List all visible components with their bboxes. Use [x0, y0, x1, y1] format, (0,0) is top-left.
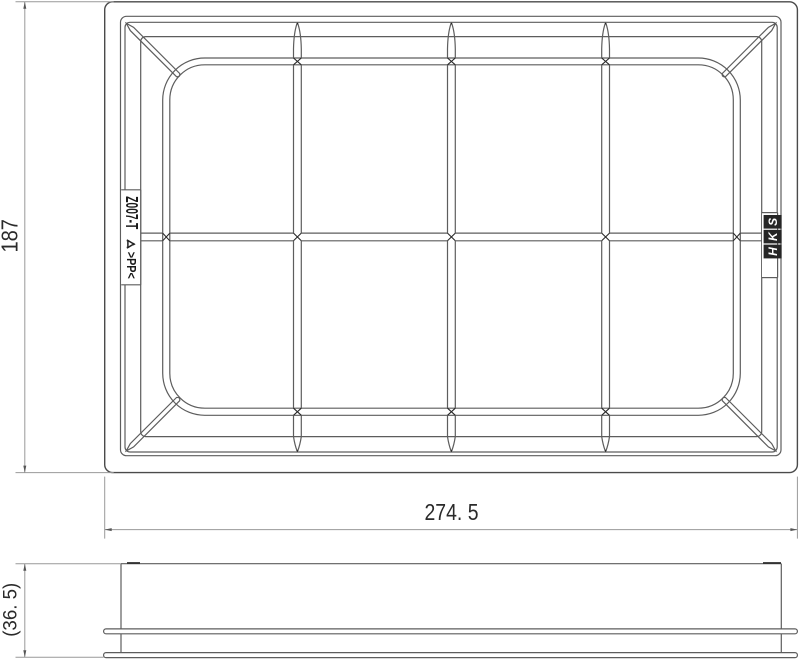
svg-text:K: K: [766, 231, 780, 241]
svg-text:274. 5: 274. 5: [425, 499, 479, 525]
svg-text:(36. 5): (36. 5): [0, 583, 21, 637]
svg-text:187: 187: [0, 219, 23, 253]
svg-text:>PP<: >PP<: [124, 252, 139, 279]
svg-text:H: H: [766, 247, 780, 256]
svg-text:Z007-T: Z007-T: [122, 196, 142, 229]
svg-text:S: S: [766, 218, 780, 226]
